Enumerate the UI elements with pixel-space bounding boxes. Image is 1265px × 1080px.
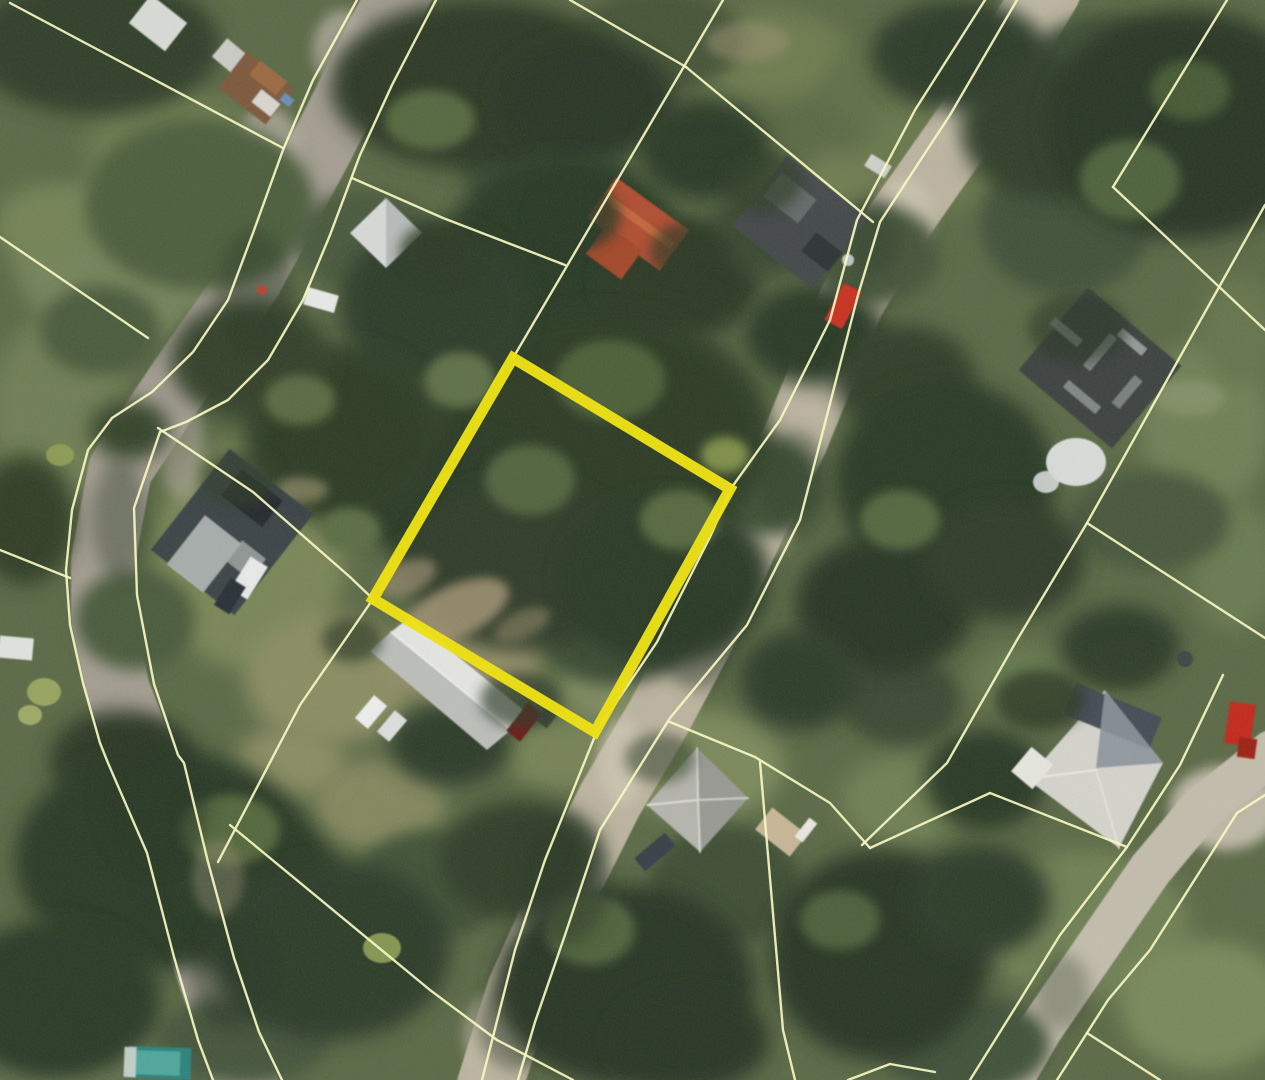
aerial-map-view[interactable] <box>0 0 1265 1080</box>
photo-grain-overlay <box>0 0 1265 1080</box>
map-canvas[interactable] <box>0 0 1265 1080</box>
